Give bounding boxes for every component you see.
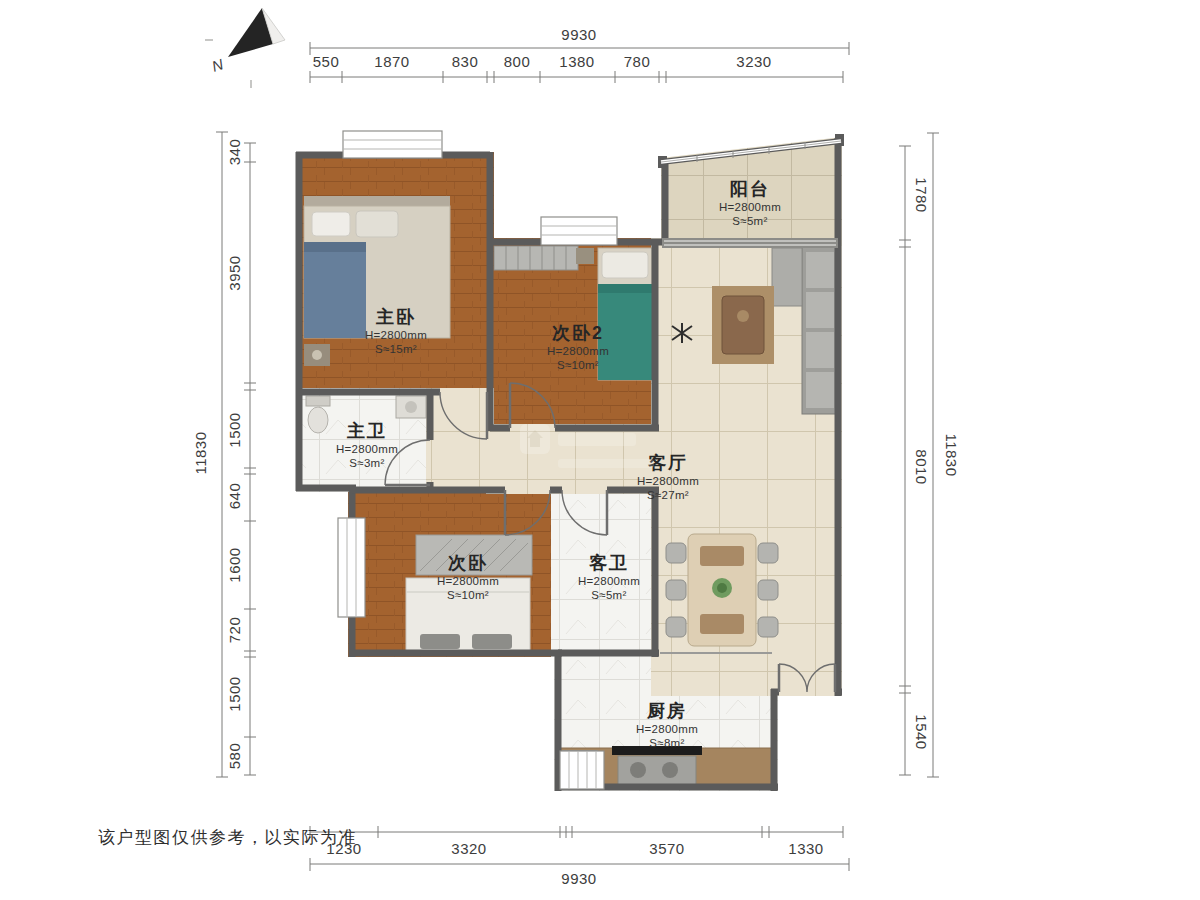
kitchen-window — [560, 751, 604, 789]
bedroom2-wardrobe — [494, 246, 578, 270]
dim-top-5: 780 — [624, 53, 651, 70]
dim-top-2: 830 — [452, 53, 479, 70]
floorplan-svg: N 9930 550 1870 830 800 1380 780 3230 99… — [0, 0, 1200, 900]
coffee-table — [712, 286, 774, 364]
dim-bottom-1: 3320 — [451, 840, 486, 857]
north-label: N — [210, 55, 226, 75]
bedroom-wardrobe — [416, 535, 532, 575]
balcony-sliding-door — [662, 238, 838, 248]
dim-top-0: 550 — [313, 53, 340, 70]
dim-left-5: 720 — [226, 617, 243, 644]
dining-set — [666, 534, 778, 646]
disclaimer-text: 该户型图仅供参考，以实际为准 — [98, 826, 357, 849]
dim-right-2: 1540 — [913, 714, 930, 749]
dim-bottom-total: 9930 — [561, 870, 596, 887]
dim-right-total: 11830 — [943, 433, 960, 476]
dim-bottom-3: 1330 — [788, 840, 823, 857]
dim-right-1: 8010 — [913, 449, 930, 484]
compass: N — [205, 8, 285, 88]
bedroom-window — [338, 518, 365, 617]
dim-left-0: 340 — [226, 139, 243, 166]
dim-right-0: 1780 — [913, 177, 930, 212]
dim-left-3: 640 — [226, 483, 243, 510]
dim-top-6: 3230 — [736, 53, 771, 70]
bedroom-bed — [406, 578, 530, 652]
dim-left-6: 1500 — [226, 676, 243, 711]
dim-top-4: 1380 — [559, 53, 594, 70]
dim-bottom-2: 3570 — [649, 840, 684, 857]
corridor-floor-2 — [486, 424, 659, 494]
dim-top-3: 800 — [504, 53, 531, 70]
dim-top-1: 1870 — [374, 53, 409, 70]
dim-left-7: 580 — [226, 743, 243, 770]
dim-left-2: 1500 — [226, 412, 243, 447]
dim-top-total: 9930 — [561, 26, 596, 43]
floorplan-canvas: N 9930 550 1870 830 800 1380 780 3230 99… — [0, 0, 1200, 900]
master-bedroom-window — [343, 131, 442, 158]
dim-left-total: 11830 — [192, 431, 209, 474]
corridor-floor-1 — [426, 388, 494, 492]
dim-left-1: 3950 — [226, 255, 243, 290]
bedroom2-window — [541, 217, 617, 245]
dim-left-4: 1600 — [226, 547, 243, 582]
